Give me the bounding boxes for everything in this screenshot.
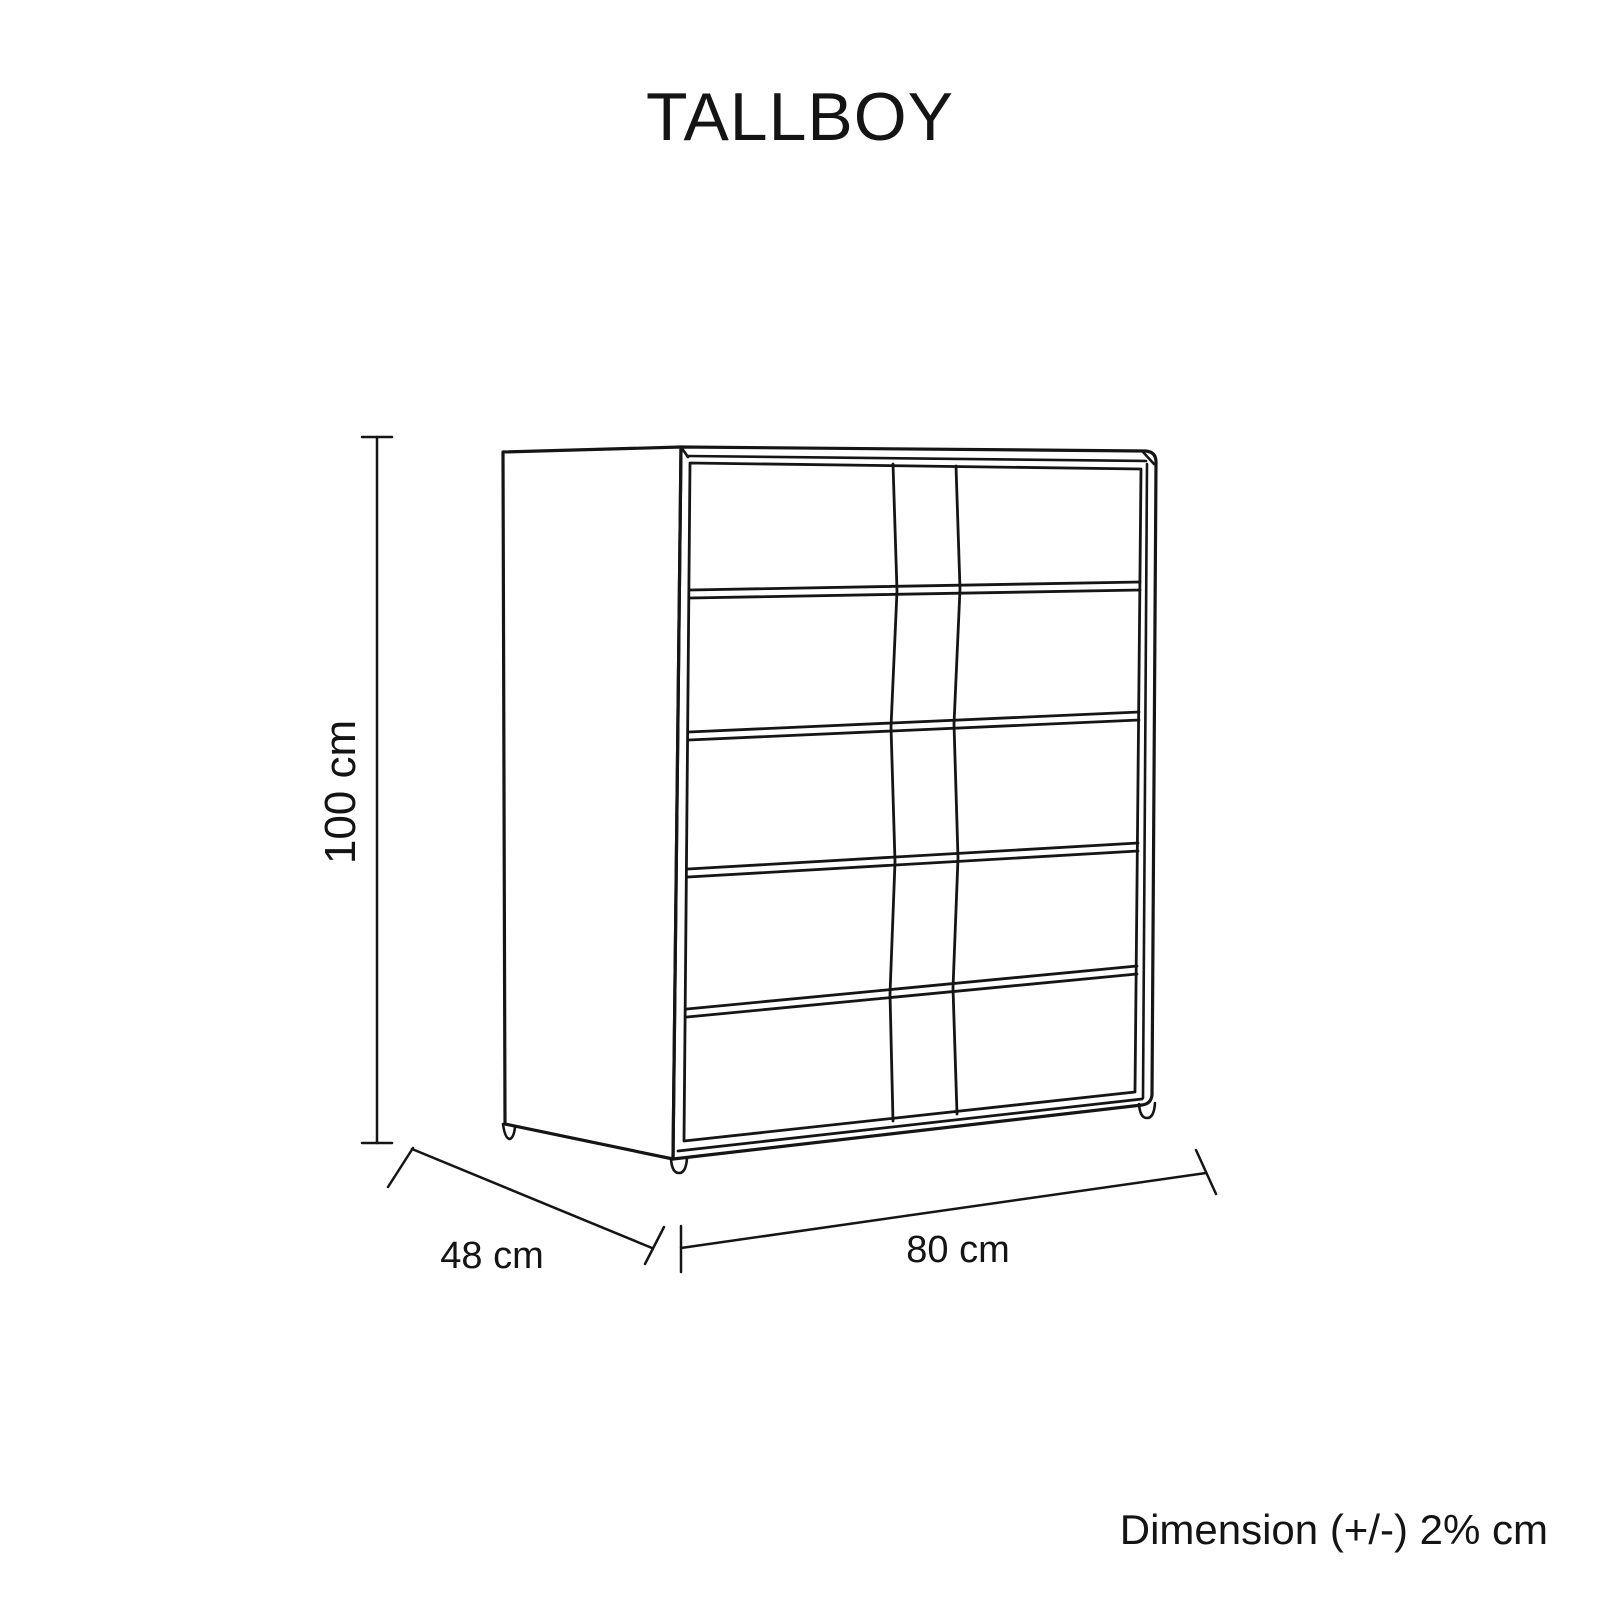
drawer-separators	[687, 582, 1140, 1017]
front-outer-frame	[673, 447, 1156, 1159]
height-dimension: 100 cm	[316, 437, 392, 1143]
centre-strip-right-line	[953, 466, 960, 1114]
width-dimension: 80 cm	[681, 1150, 1216, 1272]
height-dimension-label: 100 cm	[316, 720, 365, 864]
width-dimension-label: 80 cm	[906, 1229, 1009, 1271]
drawer-separator-4-upper	[687, 966, 1137, 1009]
tallboy-line-drawing: 100 cm 48 cm 80 cm	[0, 0, 1600, 1600]
tolerance-note: Dimension (+/-) 2% cm	[1120, 1506, 1548, 1554]
depth-dimension-start-tick	[388, 1148, 413, 1187]
width-dimension-end-tick	[1196, 1150, 1216, 1194]
drawer-separator-1-lower	[690, 590, 1140, 598]
side-panel-outline	[503, 447, 681, 1159]
front-right-edge-line	[1143, 464, 1147, 1098]
drawer-centre-strip	[890, 464, 960, 1121]
depth-dimension: 48 cm	[388, 1148, 664, 1277]
cabinet-side-panel	[503, 447, 681, 1159]
drawer-separator-1-upper	[690, 582, 1140, 590]
front-top-edge-line	[687, 456, 1146, 461]
front-base-line	[678, 1099, 1142, 1151]
centre-strip-left-line	[890, 464, 897, 1121]
front-inner-frame	[684, 463, 1141, 1141]
depth-dimension-line	[412, 1149, 652, 1248]
depth-dimension-label: 48 cm	[440, 1235, 543, 1277]
diagram-canvas: TALLBOY	[0, 0, 1600, 1600]
cabinet-front-face	[673, 447, 1156, 1159]
drawer-separator-4-lower	[687, 974, 1137, 1017]
